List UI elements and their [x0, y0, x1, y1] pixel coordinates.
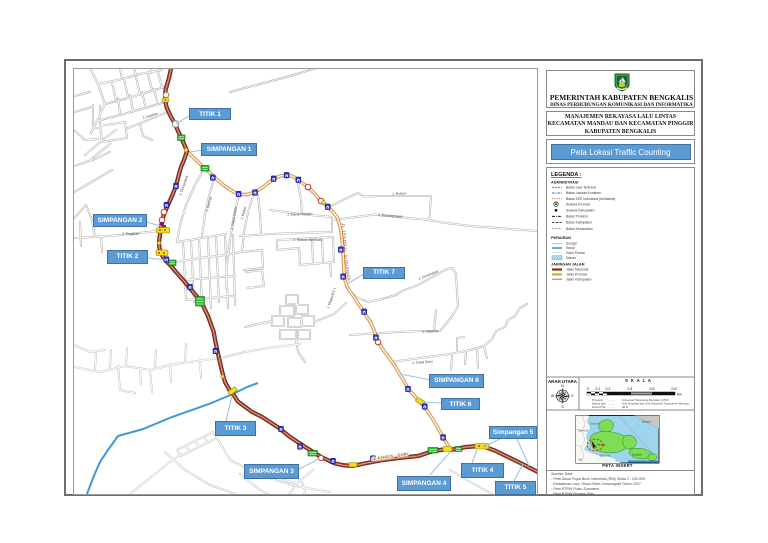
svg-text:Grid Geografi dan Grid Univers: Grid Geografi dan Grid Universal Transve…: [622, 402, 689, 406]
svg-text:J. Gerinja: J. Gerinja: [205, 196, 213, 212]
svg-text:Danau: Danau: [566, 256, 576, 260]
svg-text:LEGENDA :: LEGENDA :: [551, 172, 582, 178]
svg-text:- Kedalaman Laut, Dinas Hidro-: - Kedalaman Laut, Dinas Hidro-Oseanograf…: [551, 482, 642, 486]
svg-text:Sungai: Sungai: [566, 242, 577, 246]
svg-text:Garis Pantai: Garis Pantai: [566, 251, 585, 255]
svg-text:ADMINISTRASI: ADMINISTRASI: [551, 181, 578, 185]
svg-text:JARINGAN JALAN: JARINGAN JALAN: [551, 263, 585, 267]
svg-text:S: S: [561, 405, 564, 409]
svg-text:- Peta Dasar Rupa Bumi Indones: - Peta Dasar Rupa Bumi Indonesia (RBI) S…: [551, 477, 646, 481]
svg-text:E: E: [571, 394, 574, 398]
svg-text:Mandau: Mandau: [597, 445, 606, 447]
svg-text:PETA INSERT: PETA INSERT: [602, 463, 633, 468]
svg-text:J. Dana Hassan: J. Dana Hassan: [287, 212, 313, 217]
svg-text:Bukit Batu: Bukit Batu: [600, 455, 611, 458]
svg-text:Sumber Data:: Sumber Data:: [551, 472, 573, 476]
svg-text:Batas Provinsi: Batas Provinsi: [566, 215, 588, 219]
svg-text:0.2: 0.2: [606, 387, 611, 391]
svg-text:J. Albahra: J. Albahra: [422, 329, 438, 334]
svg-text:0.6: 0.6: [650, 387, 655, 391]
svg-text:.........: .........: [608, 405, 615, 409]
svg-text:J. Mujarobis 1: J. Mujarobis 1: [326, 287, 337, 310]
svg-text:J. Wana Indah: J. Wana Indah: [230, 207, 238, 230]
svg-text:Km: Km: [677, 393, 682, 397]
svg-text:S e l a t M a l a k a: S e l a t M a l a k a: [593, 411, 643, 415]
svg-text:- Peta RTRW Pulau Sumatera: - Peta RTRW Pulau Sumatera: [551, 487, 599, 491]
svg-text:Ibukota Provinsi: Ibukota Provinsi: [566, 202, 590, 206]
svg-text:Bengkalis: Bengkalis: [632, 455, 643, 457]
svg-text:0.1: 0.1: [596, 387, 601, 391]
svg-text:S K A L A: S K A L A: [625, 378, 652, 383]
svg-text:J. Gaya Baru: J. Gaya Baru: [412, 360, 433, 365]
svg-text:Kanal: Kanal: [566, 246, 575, 250]
svg-text:- Peta RTRW Provinsi Riau: - Peta RTRW Provinsi Riau: [551, 492, 594, 495]
svg-text:J. KarangAnyar: J. KarangAnyar: [378, 213, 404, 219]
svg-text:Batas Landas Kontinen: Batas Landas Kontinen: [566, 191, 601, 195]
svg-text:W: W: [551, 394, 555, 398]
svg-text:Batas Laut Teritorial: Batas Laut Teritorial: [566, 186, 596, 190]
svg-text:Jalan Kabupaten: Jalan Kabupaten: [566, 278, 592, 282]
svg-text:PERAIRAN: PERAIRAN: [551, 236, 571, 240]
svg-text:J. Tegakeri: J. Tegakeri: [122, 232, 140, 236]
svg-text:Kota Duri: Kota Duri: [590, 423, 600, 426]
svg-text:Batas Kabupaten: Batas Kabupaten: [566, 221, 592, 225]
svg-text:Jalan Provinsi: Jalan Provinsi: [566, 273, 587, 277]
svg-text:Ibukota Kabupaten: Ibukota Kabupaten: [566, 209, 595, 213]
svg-text:0.8: 0.8: [672, 387, 677, 391]
svg-text:J. Rukun: J. Rukun: [392, 192, 406, 196]
svg-text:Batas Kecamatan: Batas Kecamatan: [566, 227, 593, 231]
svg-text:0.4: 0.4: [628, 387, 633, 391]
svg-text:N: N: [561, 384, 564, 388]
svg-text:Batas ZEE Indonesia (Unilatera: Batas ZEE Indonesia (Unilateral): [566, 197, 615, 201]
svg-text:Malaysia: Malaysia: [642, 422, 652, 424]
svg-text:Zona UTM: Zona UTM: [592, 405, 606, 409]
svg-text:J. Siakan Bentuah: J. Siakan Bentuah: [293, 238, 322, 242]
svg-text:Jalan Nasional: Jalan Nasional: [566, 268, 588, 272]
svg-text:48 N: 48 N: [622, 405, 628, 409]
svg-text:Siak Kecil: Siak Kecil: [578, 431, 589, 433]
svg-text:0: 0: [587, 387, 589, 391]
